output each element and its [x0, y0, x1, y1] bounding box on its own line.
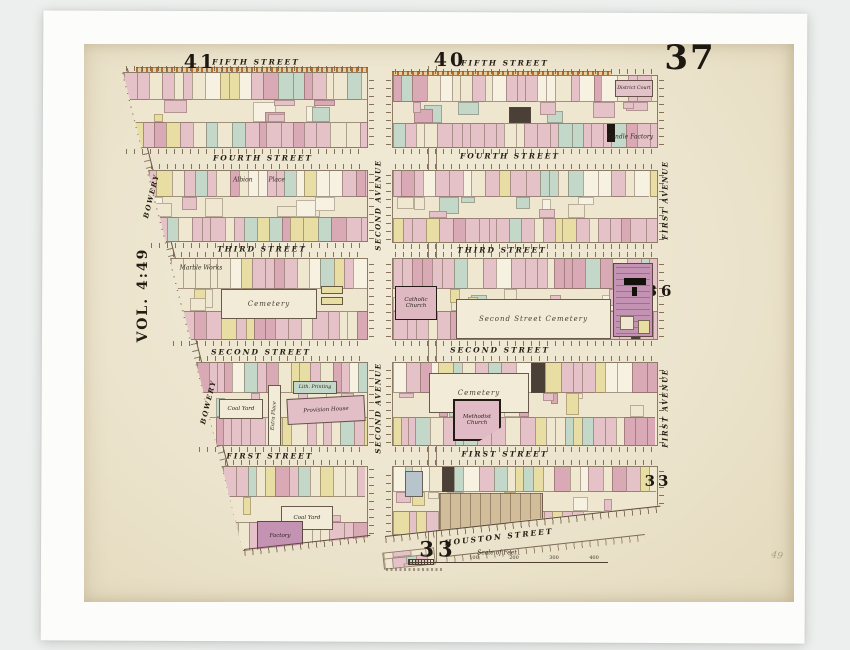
building-lot: [190, 298, 206, 312]
building-lot: [647, 511, 658, 535]
building-lot: [333, 467, 345, 497]
building-lot: [347, 73, 360, 100]
building-lot: [571, 76, 579, 102]
building-lot: [393, 467, 405, 492]
building-lot: [429, 211, 447, 217]
building-lot: [465, 218, 479, 243]
building-lot: [630, 218, 646, 243]
building-lot: [520, 417, 535, 446]
building-lot: [312, 107, 329, 122]
lot-tick-marks: [173, 341, 365, 346]
building-lot: [210, 217, 225, 242]
building-lot: [192, 217, 202, 242]
building-lot: [393, 171, 401, 197]
building-lot: [167, 217, 178, 242]
building-lot: [202, 217, 210, 242]
building-lots: [392, 170, 658, 243]
building-lot: [320, 467, 333, 497]
building-lot: [650, 171, 659, 197]
building-lot: [174, 73, 183, 100]
building-lot: [232, 363, 244, 393]
building-lot: [540, 171, 549, 197]
building-lot: [489, 218, 496, 243]
building-lot: [429, 467, 442, 492]
city-block-fourth-third-west: Albion Place: [148, 170, 368, 242]
building-lot: [461, 197, 475, 203]
building-lot: [576, 218, 589, 243]
building-lot: [566, 393, 579, 415]
building-lot: [516, 197, 530, 209]
building-lot: [562, 218, 576, 243]
lot-tick-marks: [369, 469, 374, 534]
plate-number: 37: [664, 38, 715, 78]
building-lot: [248, 171, 258, 197]
building-lot: [496, 218, 509, 243]
building-lot: [405, 123, 417, 148]
building-lot: [256, 467, 266, 497]
building-lot: [333, 73, 348, 100]
building-lot: [164, 100, 187, 113]
building-lot: [217, 122, 232, 148]
building-lot: [507, 467, 515, 492]
building-lot: [289, 467, 298, 497]
building-lot: [549, 171, 557, 197]
stone-building: [405, 471, 423, 497]
street-label-fourth-east: FOURTH STREET: [460, 152, 560, 161]
building-lot: [583, 171, 598, 197]
building-lot: [326, 73, 333, 100]
building-lot: [546, 76, 555, 102]
building-lot: [397, 197, 414, 209]
building-lot: [504, 123, 517, 148]
building-lot: [284, 259, 296, 289]
building-lot: [312, 73, 326, 100]
building-lot: [617, 363, 631, 393]
building-lot: [423, 171, 435, 197]
building-lot: [483, 259, 496, 289]
building-lot: [250, 417, 265, 446]
building-lot: [593, 417, 604, 446]
lot-tick-marks: [395, 164, 655, 169]
building-lot: [626, 467, 641, 492]
building-lot: [647, 417, 656, 446]
building-lot: [452, 123, 462, 148]
building-lot: [347, 311, 358, 340]
building-lot: [181, 311, 195, 340]
building-lot: [603, 467, 612, 492]
building-lot: [330, 122, 346, 148]
building-lot: [216, 417, 223, 446]
building-lot: [594, 76, 601, 102]
city-block-third-second-east: Catholic Church Second Street Cemetery: [392, 258, 658, 340]
building-lot: [124, 122, 132, 148]
building-lot: [505, 417, 520, 446]
building-lot: [412, 259, 422, 289]
building-lot: [561, 363, 574, 393]
building-lot: [426, 218, 439, 243]
building-lot: [467, 259, 483, 289]
building-lot: [449, 171, 462, 197]
building-lot: [172, 171, 184, 197]
brewery-yard: [620, 316, 634, 330]
building-lot: [408, 417, 415, 446]
street-label-first-avenue-upper: FIRST AVENUE: [661, 160, 670, 240]
building-lot: [216, 171, 230, 197]
building-lot: [427, 76, 440, 102]
building-lot: [232, 122, 245, 148]
building-lot: [124, 73, 137, 100]
building-lot: [509, 218, 521, 243]
building-lot: [248, 467, 256, 497]
building-lot: [406, 363, 420, 393]
building-lot: [554, 467, 570, 492]
building-lot: [442, 259, 455, 289]
city-block-second-first-west: Coal Yard Lith. Printing Provision House…: [196, 362, 368, 446]
building-lot: [178, 217, 191, 242]
catholic-church-label: Catholic Church: [396, 297, 436, 310]
lot-tick-marks: [386, 173, 391, 240]
building-lot: [399, 393, 413, 398]
scale-tick-label: 400: [589, 555, 599, 561]
coal-yard: Coal Yard: [219, 399, 263, 419]
building-lot: [525, 76, 537, 102]
building-lot: [463, 467, 478, 492]
building-lot: [623, 102, 634, 108]
building-lot: [439, 218, 453, 243]
building-lot: [154, 122, 165, 148]
building-lot: [414, 197, 425, 210]
lot-tick-marks: [126, 66, 365, 71]
building-lots: [123, 72, 368, 148]
building-lot: [568, 171, 584, 197]
building-lot: [591, 123, 603, 148]
building-lot: [304, 73, 312, 100]
building-lot: [230, 171, 239, 197]
building-lot: [583, 123, 591, 148]
building-lot: [281, 122, 293, 148]
lot-tick-marks: [395, 460, 655, 465]
building-lot: [550, 123, 558, 148]
building-lot: [149, 217, 157, 242]
building-lot: [238, 522, 249, 551]
building-lot: [598, 218, 611, 243]
building-lot: [424, 123, 436, 148]
building-lot: [414, 171, 424, 197]
building-lot: [442, 467, 454, 492]
building-lot: [515, 467, 523, 492]
building-lot: [152, 203, 172, 217]
building-lot: [573, 363, 582, 393]
building-lot: [537, 76, 545, 102]
building-lot: [353, 259, 367, 289]
building-lot: [132, 122, 144, 148]
building-lot: [245, 122, 259, 148]
building-lot: [154, 114, 163, 122]
building-lot: [206, 311, 221, 340]
building-lot: [304, 122, 316, 148]
building-lots: District Court Candle Factory: [392, 75, 658, 148]
building-lot: [339, 311, 346, 340]
building-lot: [401, 171, 414, 197]
building-lot: [635, 417, 647, 446]
building-lot: [357, 467, 365, 497]
building-lot: [217, 363, 224, 393]
scale-tick-labels: 100200300400: [408, 563, 608, 564]
building-lot: [298, 467, 311, 497]
building-lot: [555, 417, 565, 446]
building-lot: [297, 259, 309, 289]
building-lot: [413, 102, 421, 112]
building-lot: [578, 197, 595, 205]
building-lot: [415, 417, 430, 446]
building-lot: [435, 171, 449, 197]
building-lot: [585, 259, 600, 289]
building-lot: [316, 122, 330, 148]
building-lot: [510, 171, 526, 197]
building-lot: [624, 417, 635, 446]
school-building: [321, 286, 343, 294]
building-lot: [360, 122, 368, 148]
building-lot: [329, 171, 342, 197]
building-lot: [496, 123, 503, 148]
building-lot: [604, 499, 611, 511]
building-lot: [558, 171, 568, 197]
building-lot: [149, 73, 163, 100]
building-lot: [531, 363, 545, 393]
street-label-second-avenue-upper: SECOND AVENUE: [374, 159, 383, 250]
building-lot: [230, 259, 241, 289]
building-lot: [184, 171, 195, 197]
building-lot: [546, 417, 555, 446]
building-lot: [499, 171, 510, 197]
building-lot: [157, 217, 167, 242]
building-lot: [610, 218, 621, 243]
building-lot: [137, 73, 148, 100]
building-lot: [263, 73, 278, 100]
building-lot: [496, 259, 511, 289]
building-lot: [266, 122, 281, 148]
building-lot: [555, 218, 563, 243]
building-lot: [182, 197, 197, 210]
building-lot: [310, 467, 320, 497]
street-label-first-east: FIRST STREET: [462, 450, 549, 459]
building-lot: [231, 417, 242, 446]
street-label-first-west: FIRST STREET: [227, 452, 314, 461]
building-lot: [316, 171, 329, 197]
building-lot: [453, 218, 465, 243]
building-lot: [341, 363, 348, 393]
building-lot: [605, 417, 616, 446]
building-lot: [296, 171, 304, 197]
building-lot: [364, 417, 368, 446]
building-lot: [258, 171, 267, 197]
building-lot: [558, 123, 573, 148]
city-block-third-second-west: Marble Works Cemetery: [170, 258, 368, 340]
building-lot: [573, 417, 581, 446]
building-lot: [458, 102, 478, 115]
lot-tick-marks: [369, 261, 374, 337]
scale-title: Scale of Feet: [477, 550, 517, 557]
building-lot: [535, 417, 545, 446]
building-lot: [416, 123, 424, 148]
city-block-second-first-east: Cemetery Methodist Church: [392, 362, 658, 446]
lot-tick-marks: [395, 356, 655, 361]
city-block-fifth-fourth-west: [123, 72, 368, 148]
building-lot: [205, 73, 219, 100]
building-lot: [428, 492, 439, 499]
building-lot: [331, 217, 347, 242]
street-label-third-west: THIRD STREET: [217, 245, 307, 254]
building-lot: [344, 259, 353, 289]
building-lot: [223, 417, 231, 446]
building-lot: [401, 417, 408, 446]
extra-place-label: Extra Place: [271, 401, 279, 430]
building-lot: [239, 73, 251, 100]
building-lot: [251, 73, 263, 100]
building-lot: [143, 122, 154, 148]
provision-house-building: Provision House: [286, 395, 365, 425]
building-lot: [393, 511, 409, 535]
building-lot: [349, 363, 359, 393]
pencil-mark: 49: [771, 550, 784, 561]
building-lot: [572, 123, 583, 148]
building-lot: [193, 122, 206, 148]
building-lot: [570, 467, 580, 492]
building-lot: [282, 217, 290, 242]
building-lot: [540, 102, 555, 115]
lot-tick-marks: [386, 78, 391, 145]
cemetery-label: Cemetery: [248, 300, 291, 308]
building-lot: [361, 73, 368, 100]
building-lot: [318, 217, 330, 242]
building-lot: [564, 259, 572, 289]
building-lot: [568, 204, 585, 217]
second-street-cemetery-area: Second Street Cemetery: [456, 299, 611, 339]
building-lot: [437, 123, 452, 148]
street-label-first-avenue-lower: FIRST AVENUE: [661, 368, 670, 448]
building-lot: [328, 311, 339, 340]
building-lot: [494, 467, 506, 492]
building-lots: Marble Works Cemetery: [170, 258, 368, 340]
building-lot: [632, 363, 647, 393]
building-lots: Coal Yard Lith. Printing Provision House…: [196, 362, 368, 446]
building-lot: [293, 122, 304, 148]
scale-tick-label: 300: [549, 555, 559, 561]
building-lots: Catholic Church Second Street Cemetery: [392, 258, 658, 340]
building-lot: [346, 122, 360, 148]
building-lot: [412, 76, 428, 102]
building-lot: [543, 393, 554, 401]
building-lot: [241, 259, 252, 289]
lot-tick-marks: [659, 78, 664, 145]
building-lot: [393, 417, 401, 446]
building-lot: [207, 171, 216, 197]
building-lot: [342, 171, 356, 197]
street-label-fifth-east: FIFTH STREET: [461, 59, 549, 68]
building-lot: [192, 73, 205, 100]
building-lot: [579, 76, 594, 102]
brewery-yard: [638, 320, 650, 334]
building-lot: [543, 218, 555, 243]
brewery-building: [613, 263, 653, 337]
building-lot: [346, 217, 360, 242]
building-lot: [171, 259, 183, 289]
street-label-fourth-west: FOURTH STREET: [213, 154, 313, 163]
building-lot: [537, 123, 549, 148]
building-lot: [454, 467, 463, 492]
lot-tick-marks: [199, 356, 365, 361]
building-lot: [290, 217, 303, 242]
city-block-fifth-fourth-east: District Court Candle Factory: [392, 75, 658, 148]
building-lot: [523, 467, 533, 492]
building-lot: [223, 522, 238, 551]
building-lot: [485, 76, 493, 102]
lot-tick-marks: [386, 469, 391, 532]
building-lot: [555, 76, 570, 102]
building-lot: [356, 171, 365, 197]
building-lot: [492, 76, 505, 102]
building-lot: [393, 363, 406, 393]
building-lot: [625, 171, 635, 197]
neighbor-plate-33-right: 33: [645, 472, 672, 490]
building-lot: [521, 218, 534, 243]
building-lot: [252, 259, 265, 289]
building-lot: [180, 122, 193, 148]
building-lot: [393, 123, 405, 148]
building-lot: [229, 73, 239, 100]
building-lot: [320, 259, 334, 289]
building-lot: [275, 467, 289, 497]
district-court-label: District Court: [617, 86, 651, 92]
marble-cemetery-area: Cemetery: [221, 289, 317, 319]
building-lot: [224, 363, 232, 393]
building-lot: [357, 311, 367, 340]
building-lot: [162, 73, 173, 100]
building-lot: [516, 123, 524, 148]
building-lot: [401, 76, 412, 102]
building-lot: [471, 171, 486, 197]
building-lot: [265, 259, 274, 289]
coal-yard-label: Coal Yard: [228, 406, 255, 412]
building-lot: [278, 73, 293, 100]
building-lot: [506, 76, 517, 102]
building-lot: [621, 218, 630, 243]
building-lot: [526, 171, 541, 197]
brewery-chimney-icon: [632, 287, 637, 296]
building-lot: [598, 171, 611, 197]
street-label-third-east: THIRD STREET: [457, 246, 547, 255]
lith-printing-label: Lith. Printing: [299, 385, 332, 391]
building-lot: [600, 259, 613, 289]
building-lot: [210, 259, 218, 289]
street-label-second-avenue-lower: SECOND AVENUE: [374, 362, 383, 453]
methodist-church-label: Methodist Church: [457, 414, 497, 427]
building-lot: [593, 102, 615, 118]
building-lots: Cemetery Methodist Church: [392, 362, 658, 446]
building-lot: [422, 259, 432, 289]
city-block-fourth-third-east: [392, 170, 658, 243]
building-lot: [430, 417, 443, 446]
building-lot: [361, 217, 368, 242]
building-lot: [194, 311, 206, 340]
building-lot: [315, 197, 335, 211]
catholic-church-building: Catholic Church: [395, 286, 437, 320]
factory-label: Factory: [269, 533, 290, 539]
volume-label: VOL. 4:49: [135, 248, 151, 343]
building-lot: [274, 100, 295, 105]
building-lot: [653, 311, 658, 340]
building-lot: [334, 259, 344, 289]
